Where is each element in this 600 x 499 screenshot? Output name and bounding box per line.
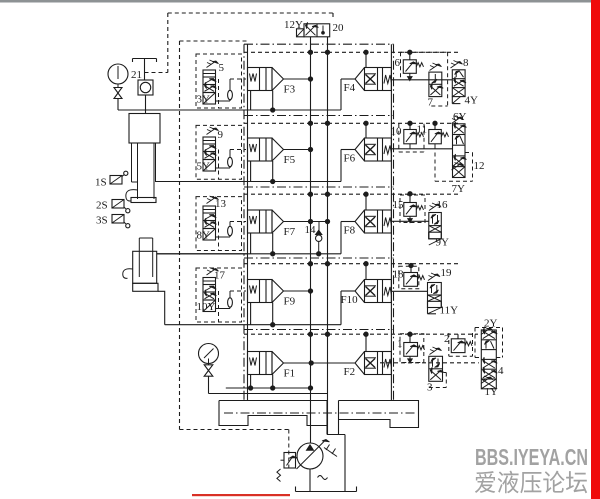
svg-text:4Y: 4Y — [465, 95, 479, 107]
svg-text:21: 21 — [131, 69, 142, 81]
svg-text:7Y: 7Y — [452, 183, 466, 195]
svg-text:F1: F1 — [284, 368, 296, 380]
svg-text:F2: F2 — [344, 366, 356, 378]
svg-text:12Y: 12Y — [284, 19, 303, 31]
svg-text:7: 7 — [428, 97, 434, 109]
svg-text:8: 8 — [463, 57, 469, 69]
svg-text:4: 4 — [498, 365, 504, 377]
svg-text:14: 14 — [305, 224, 317, 236]
svg-text:2S: 2S — [96, 200, 108, 212]
svg-text:F7: F7 — [284, 226, 296, 238]
svg-text:9: 9 — [218, 129, 224, 141]
svg-text:5Y: 5Y — [197, 161, 211, 173]
svg-text:8Y: 8Y — [197, 230, 211, 242]
svg-text:11: 11 — [417, 124, 428, 136]
svg-text:爱液压论坛: 爱液压论坛 — [474, 470, 588, 497]
svg-text:F3: F3 — [284, 84, 296, 96]
svg-text:BBS.IYEYA.CN: BBS.IYEYA.CN — [475, 444, 588, 470]
svg-text:20: 20 — [333, 22, 345, 34]
svg-text:17: 17 — [214, 270, 226, 282]
svg-text:10Y: 10Y — [197, 301, 216, 313]
svg-text:16: 16 — [437, 199, 449, 211]
svg-text:F9: F9 — [284, 296, 296, 308]
svg-text:3S: 3S — [96, 215, 108, 227]
svg-text:13: 13 — [215, 198, 227, 210]
svg-text:F6: F6 — [344, 153, 356, 165]
svg-text:F8: F8 — [344, 225, 356, 237]
svg-text:F4: F4 — [344, 82, 356, 94]
svg-text:F5: F5 — [284, 154, 296, 166]
svg-text:11Y: 11Y — [440, 305, 459, 317]
svg-text:10: 10 — [391, 126, 403, 138]
svg-text:6: 6 — [395, 57, 401, 69]
svg-text:18: 18 — [393, 269, 405, 281]
svg-text:1Y: 1Y — [485, 386, 499, 398]
svg-text:5: 5 — [219, 62, 225, 74]
svg-text:9Y: 9Y — [436, 237, 450, 249]
svg-text:3Y: 3Y — [197, 94, 211, 106]
svg-text:15: 15 — [393, 199, 405, 211]
svg-text:F10: F10 — [341, 294, 359, 306]
svg-text:1S: 1S — [95, 177, 107, 189]
svg-text:12: 12 — [474, 160, 485, 172]
svg-text:19: 19 — [441, 267, 453, 279]
